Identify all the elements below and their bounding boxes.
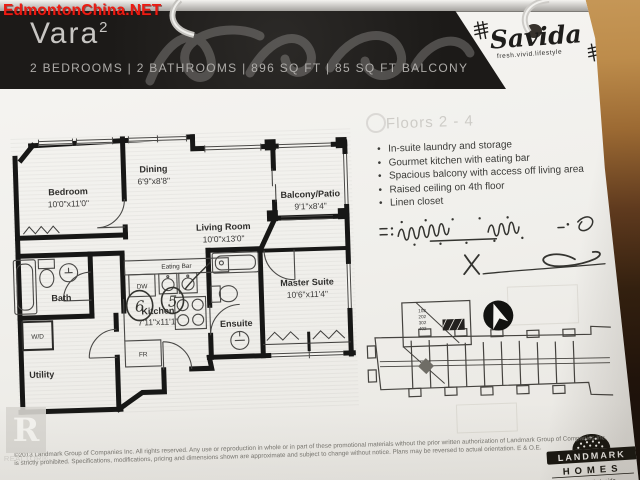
dishwasher-label: DW — [137, 283, 149, 290]
svg-text:202: 202 — [418, 314, 426, 319]
svg-text:7'11"x11'1": 7'11"x11'1" — [138, 316, 179, 327]
bedroom-label: Bedroom — [48, 186, 88, 197]
savida-hash-left-icon — [472, 20, 489, 41]
floorplan-drawing: Bedroom 10'0"x11'0" Dining 6'9"x8'8" Liv… — [5, 96, 370, 451]
savida-hash-right-icon — [586, 42, 603, 63]
siteplan-drawing: 102 202 302 402 — [357, 282, 614, 447]
living-room-label: Living Room — [196, 221, 251, 233]
compass-icon — [483, 300, 514, 331]
dining-label: Dining — [139, 164, 167, 175]
balcony-label: Balcony/Patio — [280, 188, 340, 200]
floors-badge-icon — [366, 113, 387, 134]
washer-dryer-label: W/D — [31, 334, 44, 341]
page-title: Vara2 — [30, 17, 110, 51]
photo-stage: Vara2 2 BEDROOMS | 2 BATHROOMS | 896 SQ … — [0, 0, 640, 480]
svg-text:10'0"x13'0": 10'0"x13'0" — [203, 233, 245, 244]
landmark-logo-drawing: LANDMARK HOMES It's what's inside — [543, 424, 640, 480]
master-suite-label: Master Suite — [280, 276, 334, 288]
title-superscript: 2 — [99, 19, 109, 36]
header-banner: Vara2 2 BEDROOMS | 2 BATHROOMS | 896 SQ … — [0, 11, 506, 89]
ensuite-label: Ensuite — [220, 318, 253, 329]
title-text: Vara — [30, 17, 99, 50]
highlighted-unit — [442, 319, 464, 331]
svg-text:9'1"x8'4": 9'1"x8'4" — [294, 201, 327, 212]
svg-text:6'9"x8'8": 6'9"x8'8" — [137, 176, 170, 187]
realtor-label: REALTOR® — [1, 454, 51, 463]
floors-heading: Floors 2 - 4 — [386, 112, 474, 132]
unit-numbers: 102 202 302 402 — [418, 308, 427, 331]
brochure-page: Vara2 2 BEDROOMS | 2 BATHROOMS | 896 SQ … — [0, 0, 640, 480]
svg-text:302: 302 — [419, 320, 427, 325]
realtor-logo-icon: R — [6, 407, 46, 453]
realtor-watermark: R REALTOR® — [1, 407, 51, 463]
banner-graffiti-scribble — [110, 11, 490, 89]
signature-drawing — [455, 239, 612, 284]
bath-label: Bath — [51, 293, 71, 304]
handwritten-5: 5 — [168, 292, 178, 310]
fridge-label: FR — [139, 351, 148, 358]
eating-bar-label: Eating Bar — [161, 263, 192, 271]
feature-list: In-suite laundry and storage Gourmet kit… — [375, 135, 612, 211]
signature-area — [455, 239, 612, 289]
landmark-homes-logo: LANDMARK HOMES It's what's inside — [543, 424, 640, 480]
edmontonchina-watermark: EdmontonChina.NET — [3, 2, 161, 20]
svg-text:402: 402 — [419, 326, 427, 331]
plan-paper-texture — [10, 126, 359, 417]
handwritten-6: 6 — [135, 297, 146, 315]
svg-text:10'6"x11'4": 10'6"x11'4" — [287, 289, 329, 300]
plan-specs: 2 BEDROOMS | 2 BATHROOMS | 896 SQ FT | 8… — [30, 61, 468, 75]
svg-text:102: 102 — [418, 308, 426, 313]
utility-label: Utility — [29, 369, 54, 380]
svg-text:10'0"x11'0": 10'0"x11'0" — [48, 198, 90, 209]
savida-logo: Savida fresh.vivid.lifestyle — [489, 20, 595, 60]
